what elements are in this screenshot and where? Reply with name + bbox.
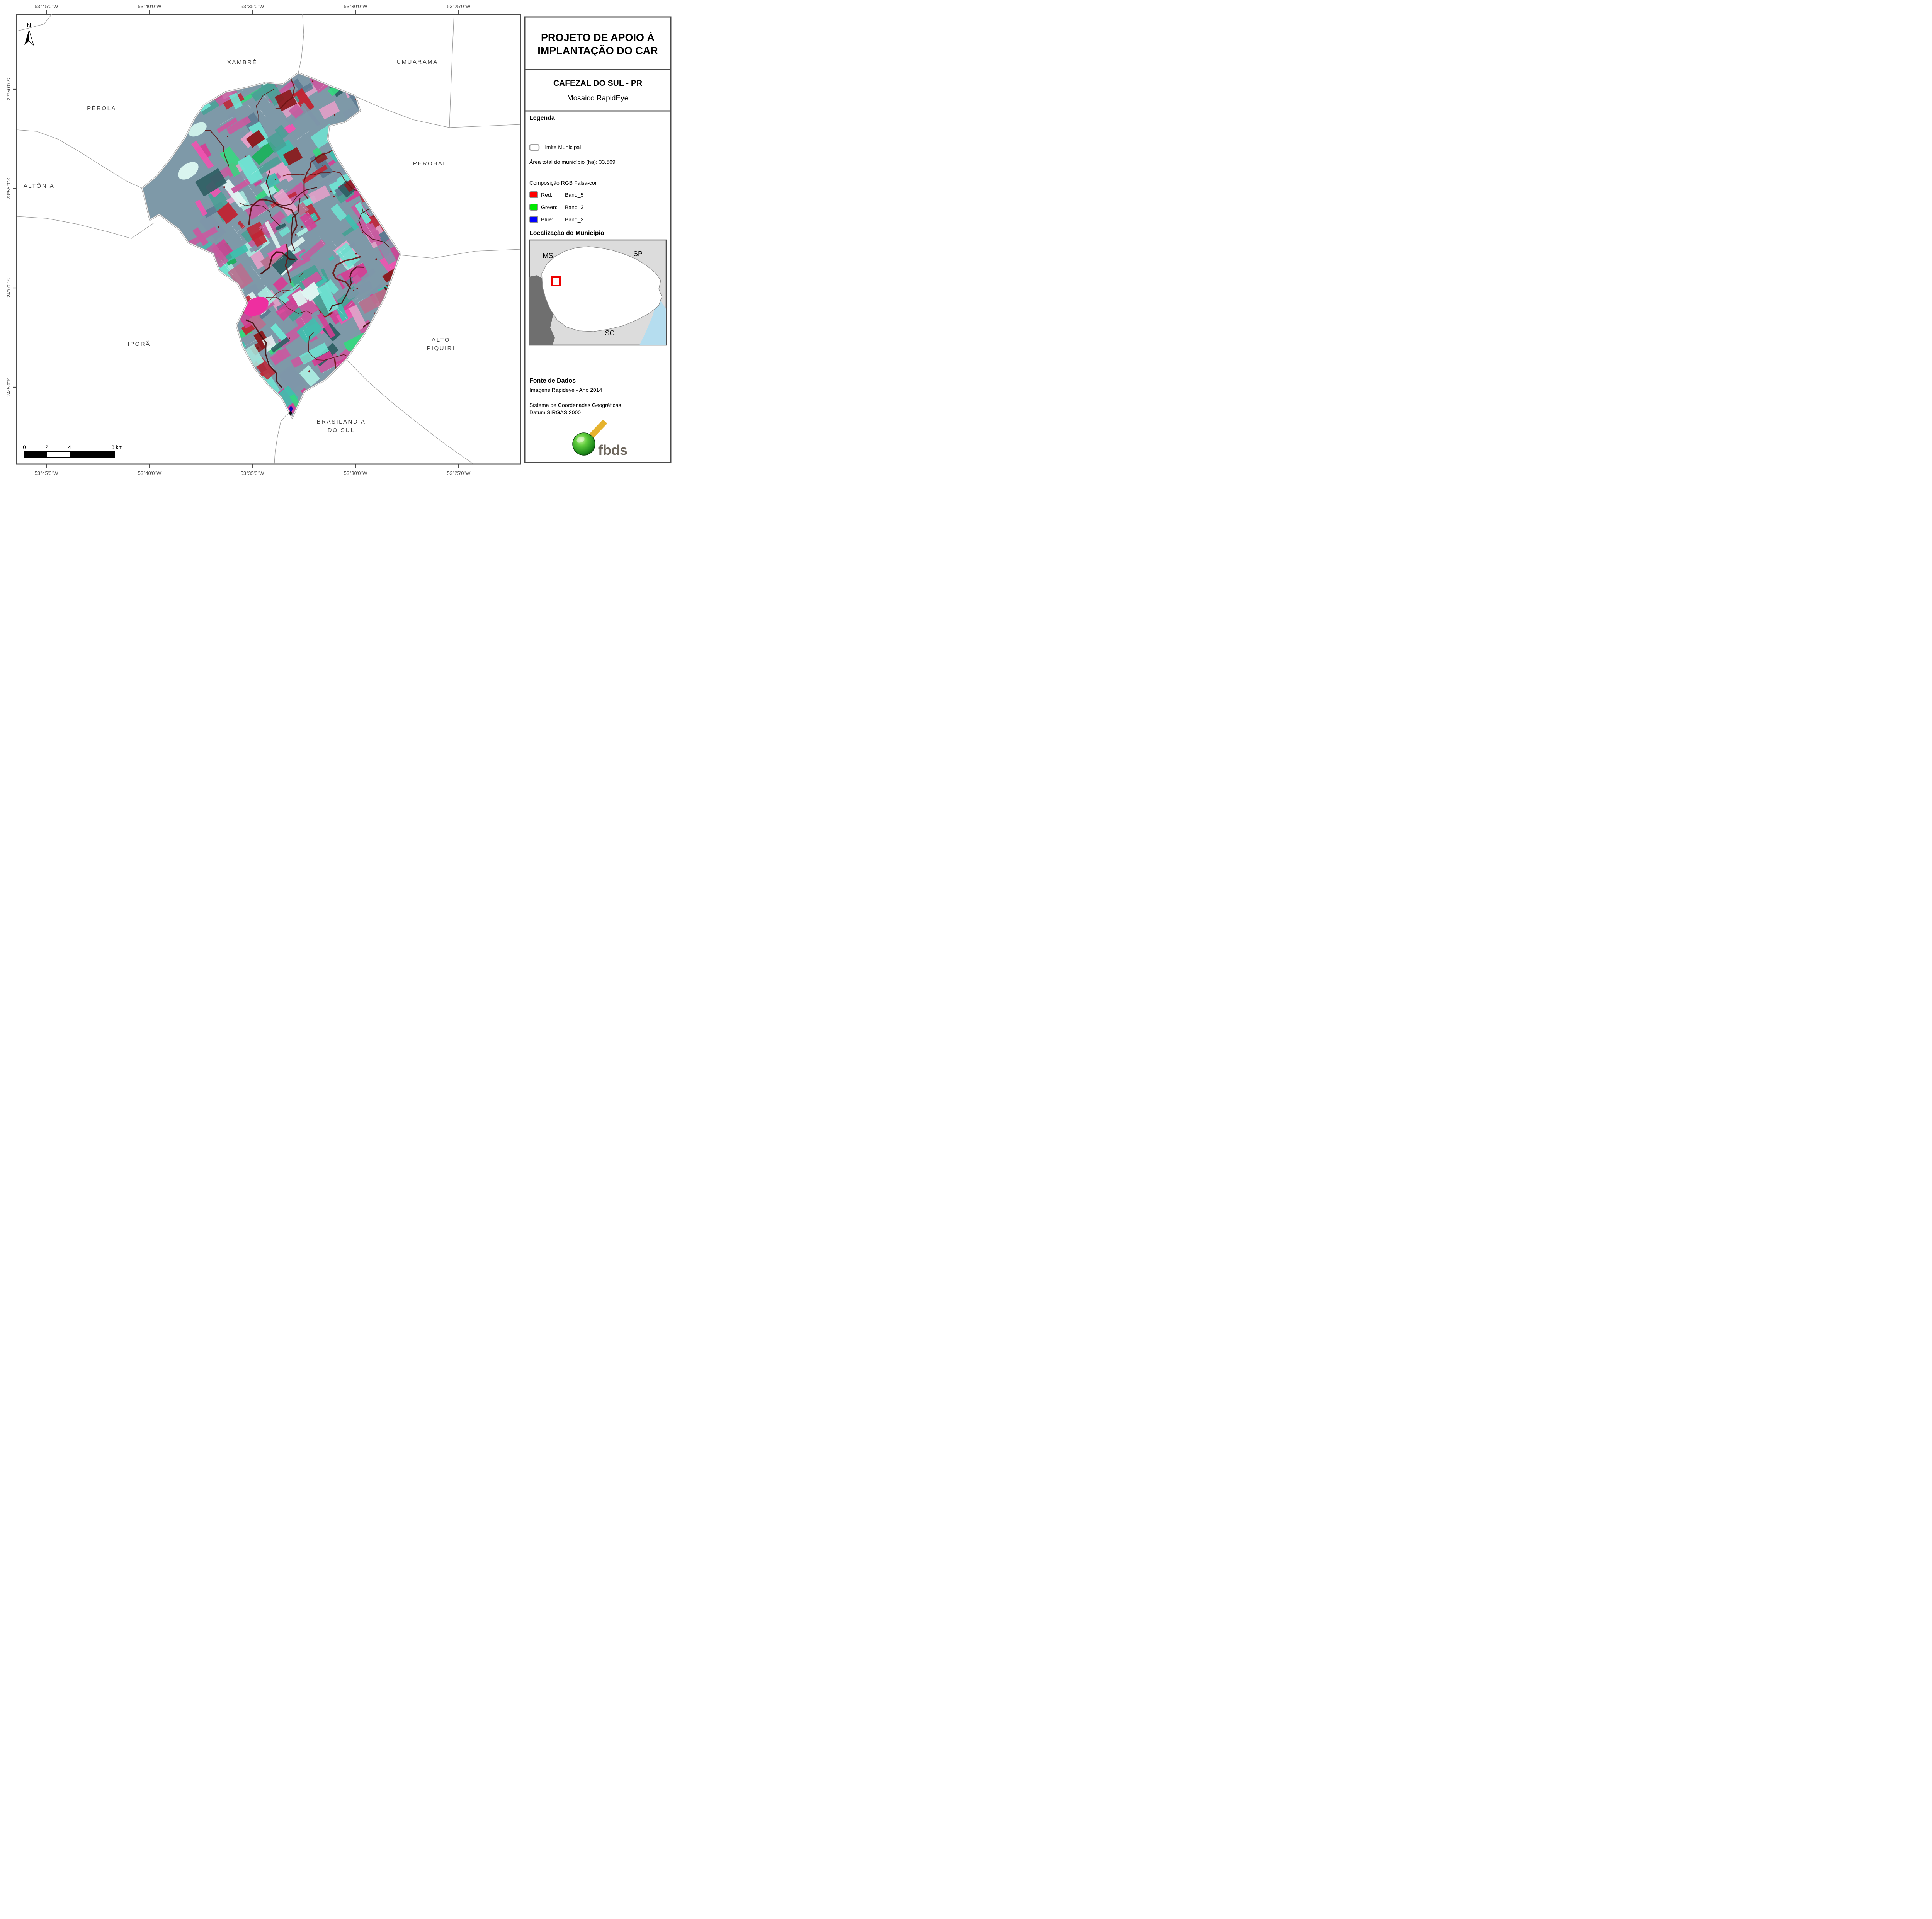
scale-bar-black bbox=[24, 451, 115, 458]
scale-bar-white bbox=[47, 452, 70, 457]
scale-8km: 8 km bbox=[111, 444, 122, 450]
red-name: Red: bbox=[541, 192, 553, 198]
scale-0: 0 bbox=[23, 444, 26, 450]
product-name: Mosaico RapidEye bbox=[567, 94, 628, 102]
panel-title-line2: IMPLANTAÇÃO DO CAR bbox=[537, 44, 658, 56]
label-altonia: ALTÔNIA bbox=[24, 183, 55, 189]
location-inset: MS SP SC bbox=[529, 240, 666, 345]
label-xambre: XAMBRÊ bbox=[227, 59, 257, 66]
label-brasilandia: BRASILÂNDIA bbox=[317, 419, 366, 425]
lon-label: 53°25'0"W bbox=[447, 470, 471, 476]
inset-label-sc: SC bbox=[605, 329, 614, 337]
lon-label: 53°35'0"W bbox=[241, 3, 264, 9]
lon-label: 53°45'0"W bbox=[35, 3, 58, 9]
lon-label: 53°40'0"W bbox=[138, 470, 162, 476]
label-alto-piquiri: ALTO bbox=[432, 337, 450, 343]
panel-title-line1: PROJETO DE APOIO À bbox=[541, 31, 655, 43]
limite-municipal-swatch bbox=[530, 145, 539, 150]
side-panel: PROJETO DE APOIO À IMPLANTAÇÃO DO CAR CA… bbox=[525, 17, 671, 463]
water-body-dark bbox=[289, 411, 292, 415]
limite-municipal-label: Limite Municipal bbox=[542, 144, 581, 150]
logo-green-sphere bbox=[573, 433, 595, 455]
label-umuarama: UMUARAMA bbox=[396, 59, 438, 65]
label-alto-piquiri2: PIQUIRI bbox=[427, 345, 455, 352]
source-line3: Datum SIRGAS 2000 bbox=[529, 409, 581, 415]
map-frame: XAMBRÊ UMUARAMA PÉROLA PEROBAL ALTÔNIA I… bbox=[17, 14, 520, 464]
label-perobal: PEROBAL bbox=[413, 160, 447, 167]
inset-label-sp: SP bbox=[633, 250, 643, 258]
scale-4: 4 bbox=[68, 444, 71, 450]
lat-label: 23°55'0"S bbox=[6, 177, 12, 199]
source-line1: Imagens Rapideye - Ano 2014 bbox=[529, 387, 602, 393]
lon-label: 53°25'0"W bbox=[447, 3, 471, 9]
lat-label: 24°0'0"S bbox=[6, 278, 12, 298]
lon-label: 53°30'0"W bbox=[344, 470, 367, 476]
water-body bbox=[289, 406, 293, 412]
inset-label-ms: MS bbox=[543, 252, 553, 260]
location-heading: Localização do Município bbox=[529, 230, 604, 236]
map-canvas: XAMBRÊ UMUARAMA PÉROLA PEROBAL ALTÔNIA I… bbox=[0, 0, 678, 480]
scale-2: 2 bbox=[45, 444, 48, 450]
north-label: N bbox=[27, 22, 31, 29]
lat-label: 24°5'0"S bbox=[6, 378, 12, 397]
red-swatch bbox=[530, 192, 538, 198]
green-band: Band_3 bbox=[565, 204, 583, 210]
label-perola: PÉROLA bbox=[87, 105, 116, 112]
municipality-name: CAFEZAL DO SUL - PR bbox=[553, 79, 642, 88]
label-brasilandia2: DO SUL bbox=[328, 427, 355, 434]
lon-label: 53°30'0"W bbox=[344, 3, 367, 9]
red-band: Band_5 bbox=[565, 192, 583, 198]
map-sheet: XAMBRÊ UMUARAMA PÉROLA PEROBAL ALTÔNIA I… bbox=[0, 0, 678, 480]
lon-label: 53°40'0"W bbox=[138, 3, 162, 9]
green-name: Green: bbox=[541, 204, 558, 210]
lat-label: 23°50'0"S bbox=[6, 78, 12, 100]
label-ipora: IPORÃ bbox=[128, 341, 150, 347]
green-swatch bbox=[530, 204, 538, 210]
source-heading: Fonte de Dados bbox=[529, 378, 576, 384]
rgb-heading: Composição RGB Falsa-cor bbox=[529, 180, 597, 186]
source-line2: Sistema de Coordenadas Geográficas bbox=[529, 402, 621, 408]
area-total-label: Área total do município (ha): 33.569 bbox=[529, 159, 616, 165]
blue-name: Blue: bbox=[541, 216, 553, 223]
lon-label: 53°35'0"W bbox=[241, 470, 264, 476]
legend-heading: Legenda bbox=[529, 115, 555, 121]
logo-text: fbds bbox=[598, 442, 628, 458]
blue-band: Band_2 bbox=[565, 216, 583, 223]
blue-swatch bbox=[530, 216, 538, 223]
lon-label: 53°45'0"W bbox=[35, 470, 58, 476]
